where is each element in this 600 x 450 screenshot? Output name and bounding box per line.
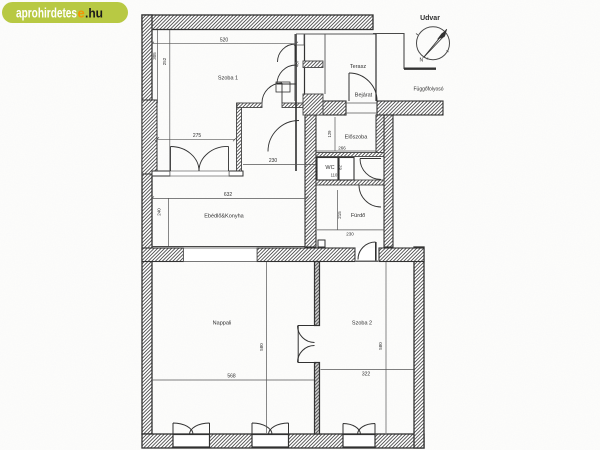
svg-text:230: 230 bbox=[346, 232, 354, 237]
svg-text:aprohirdetes: aprohirdetes bbox=[16, 6, 77, 21]
svg-text:Nappali: Nappali bbox=[213, 321, 232, 327]
svg-text:275: 275 bbox=[193, 133, 202, 139]
svg-text:580: 580 bbox=[378, 342, 383, 350]
svg-text:Fürdő: Fürdő bbox=[351, 213, 365, 219]
svg-text:240: 240 bbox=[157, 208, 162, 216]
svg-text:252: 252 bbox=[162, 57, 167, 65]
svg-text:WC: WC bbox=[325, 165, 334, 171]
svg-text:Szoba 2: Szoba 2 bbox=[352, 321, 372, 327]
svg-text:Bejárat: Bejárat bbox=[355, 93, 373, 99]
svg-text:266: 266 bbox=[338, 146, 346, 151]
svg-text:N: N bbox=[420, 58, 424, 64]
svg-text:e: e bbox=[78, 6, 85, 21]
svg-text:568: 568 bbox=[227, 374, 236, 380]
svg-text:.hu: .hu bbox=[85, 6, 103, 21]
svg-text:305: 305 bbox=[152, 52, 157, 60]
svg-text:487: 487 bbox=[295, 59, 300, 67]
svg-text:Előszoba: Előszoba bbox=[345, 135, 369, 141]
svg-text:82: 82 bbox=[338, 165, 343, 170]
svg-text:110: 110 bbox=[331, 173, 338, 178]
svg-text:580: 580 bbox=[259, 343, 264, 351]
svg-text:Ebédlő&Konyha: Ebédlő&Konyha bbox=[204, 214, 244, 220]
svg-text:215: 215 bbox=[337, 211, 342, 219]
svg-text:Udvar: Udvar bbox=[420, 15, 440, 22]
svg-text:230: 230 bbox=[269, 158, 278, 164]
svg-text:Függőfolyosó: Függőfolyosó bbox=[413, 87, 443, 93]
svg-text:520: 520 bbox=[220, 38, 229, 44]
svg-text:322: 322 bbox=[362, 372, 371, 378]
svg-text:Terasz: Terasz bbox=[350, 64, 366, 70]
svg-text:Szoba 1: Szoba 1 bbox=[218, 76, 238, 82]
svg-text:632: 632 bbox=[224, 192, 233, 198]
svg-text:129: 129 bbox=[327, 130, 332, 138]
